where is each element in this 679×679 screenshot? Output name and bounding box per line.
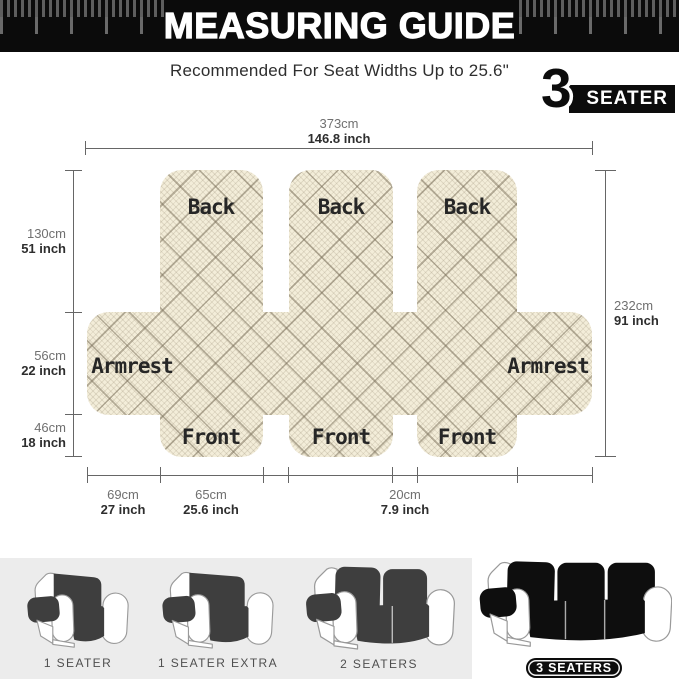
tick xyxy=(417,467,418,483)
variant-label: 1 SEATER EXTRA xyxy=(158,656,278,670)
dim-top-inch: 146.8 inch xyxy=(239,132,439,147)
tick xyxy=(263,467,264,483)
dim-inch: 51 inch xyxy=(4,242,66,257)
dim-cm: 130cm xyxy=(4,227,66,242)
back-label-2: Back xyxy=(318,195,365,219)
dim-left-armrest: 56cm 22 inch xyxy=(4,349,66,378)
dim-cm: 20cm xyxy=(345,488,465,503)
dim-line-top xyxy=(85,148,593,149)
dim-left-front: 46cm 18 inch xyxy=(4,421,66,450)
dim-left-back: 130cm 51 inch xyxy=(4,227,66,256)
armchair-1-seater-icon xyxy=(22,566,134,650)
armchair-1-seater-extra-icon xyxy=(157,566,279,650)
tick xyxy=(65,170,82,171)
tick xyxy=(160,467,161,483)
ruler-ticks-right-icon xyxy=(519,0,679,34)
variant-label: 1 SEATER xyxy=(44,656,112,670)
tick xyxy=(65,414,82,415)
sofa-3-seater-icon xyxy=(476,554,672,652)
tick xyxy=(517,467,518,483)
tick xyxy=(288,467,289,483)
ruler-ticks-left-icon xyxy=(0,0,166,34)
tick xyxy=(87,467,88,483)
badge-number-fill: 3 xyxy=(541,60,572,116)
dim-cm: 56cm xyxy=(4,349,66,364)
dim-cm: 232cm xyxy=(614,299,676,314)
sofa-2-seater-icon xyxy=(299,561,459,651)
seater-badge-label: SEATER xyxy=(586,88,668,110)
armrest-label-right: Armrest xyxy=(507,354,589,378)
dim-line-right xyxy=(605,170,606,457)
page-title: MEASURING GUIDE xyxy=(164,5,516,47)
tick xyxy=(595,456,616,457)
variant-label-highlighted: 3 SEATERS xyxy=(526,658,622,678)
dim-right-label: 232cm 91 inch xyxy=(614,299,676,328)
front-label-1: Front xyxy=(182,425,240,449)
tick xyxy=(595,170,616,171)
dim-top-cm: 373cm xyxy=(239,117,439,132)
tick xyxy=(65,312,82,313)
variant-2-seaters: 2 SEATERS xyxy=(296,561,462,671)
tick xyxy=(392,467,393,483)
tick xyxy=(592,467,593,483)
dim-cm: 46cm xyxy=(4,421,66,436)
dim-inch: 25.6 inch xyxy=(151,503,271,518)
dim-inch: 7.9 inch xyxy=(345,503,465,518)
dim-cm: 65cm xyxy=(151,488,271,503)
variant-3-seaters: 3 SEATERS xyxy=(474,554,674,678)
seater-badge-number: 3 3 xyxy=(541,60,595,118)
variant-1-seater-extra: 1 SEATER EXTRA xyxy=(155,566,281,670)
variant-label: 2 SEATERS xyxy=(340,657,418,671)
tick xyxy=(592,141,593,155)
back-label-3: Back xyxy=(444,195,491,219)
measuring-guide-infographic: MEASURING GUIDE Recommended For Seat Wid… xyxy=(0,0,679,679)
variant-1-seater: 1 SEATER xyxy=(20,566,136,670)
front-label-3: Front xyxy=(438,425,496,449)
front-label-2: Front xyxy=(312,425,370,449)
back-label-1: Back xyxy=(188,195,235,219)
header-banner: MEASURING GUIDE xyxy=(0,0,679,52)
dim-inch: 91 inch xyxy=(614,314,676,329)
dim-top-label: 373cm 146.8 inch xyxy=(239,117,439,146)
dim-inch: 22 inch xyxy=(4,364,66,379)
dim-inch: 18 inch xyxy=(4,436,66,451)
tick xyxy=(65,456,82,457)
dim-bottom-seat-width: 65cm 25.6 inch xyxy=(151,488,271,517)
tick xyxy=(85,141,86,155)
dim-bottom-gap-width: 20cm 7.9 inch xyxy=(345,488,465,517)
armrest-label-left: Armrest xyxy=(91,354,173,378)
